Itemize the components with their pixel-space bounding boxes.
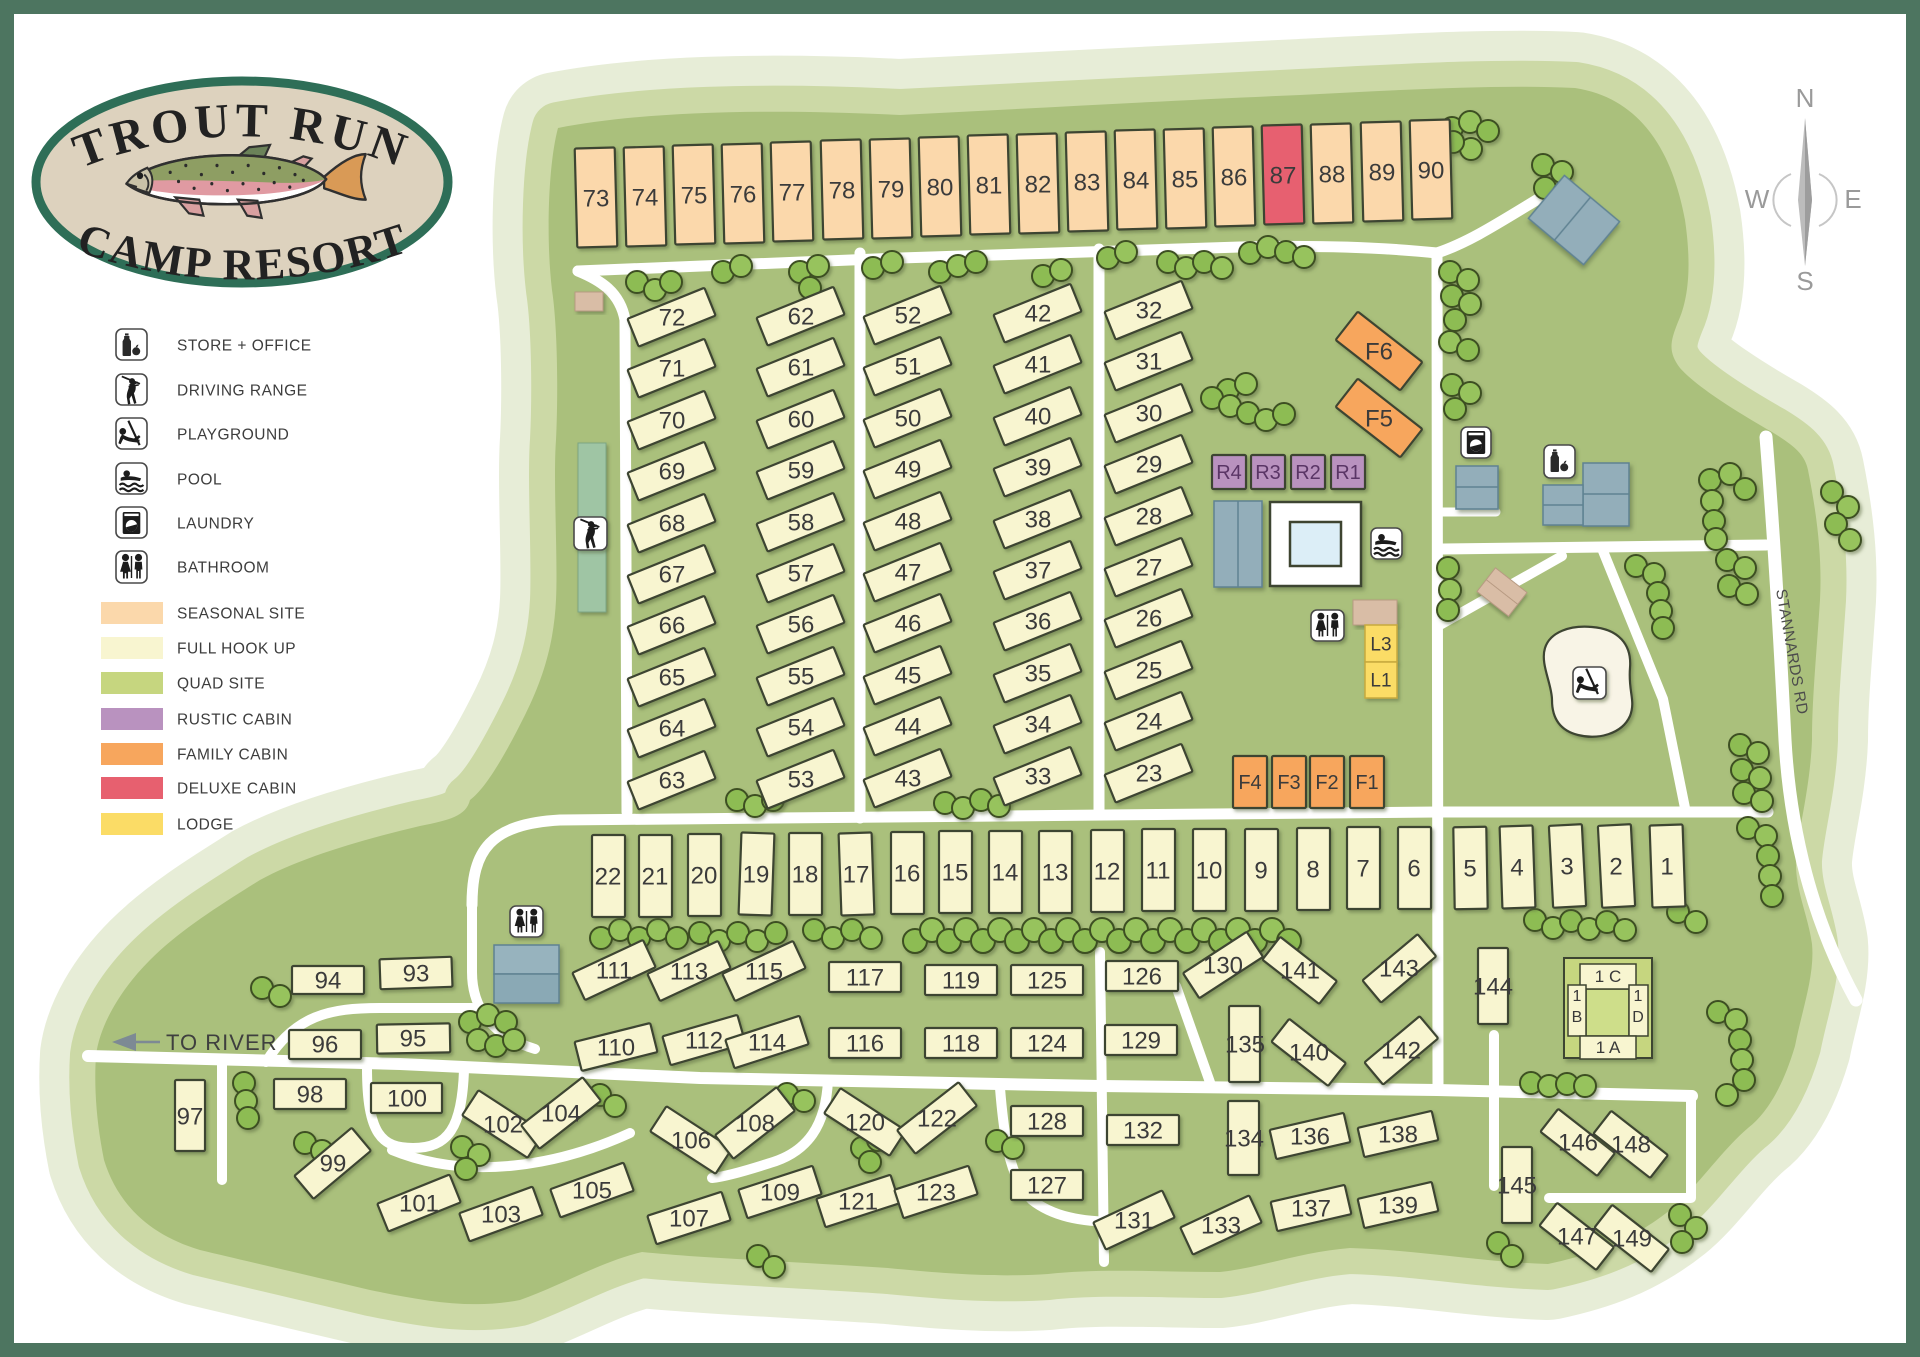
- svg-text:W: W: [1745, 184, 1770, 214]
- svg-text:43: 43: [895, 765, 922, 792]
- svg-text:1: 1: [1573, 988, 1582, 1005]
- svg-text:136: 136: [1290, 1123, 1330, 1150]
- svg-text:37: 37: [1025, 557, 1052, 584]
- svg-text:86: 86: [1221, 164, 1248, 191]
- svg-text:25: 25: [1136, 657, 1163, 684]
- svg-text:56: 56: [788, 611, 815, 638]
- svg-text:123: 123: [916, 1179, 956, 1206]
- svg-text:N: N: [1796, 83, 1815, 113]
- svg-text:F1: F1: [1355, 772, 1378, 794]
- svg-text:132: 132: [1123, 1117, 1163, 1144]
- svg-text:BATHROOM: BATHROOM: [177, 559, 269, 576]
- svg-text:114: 114: [748, 1029, 786, 1056]
- svg-text:77: 77: [779, 179, 806, 206]
- svg-text:74: 74: [632, 184, 659, 211]
- svg-text:109: 109: [760, 1179, 800, 1206]
- svg-text:31: 31: [1136, 348, 1163, 375]
- svg-text:70: 70: [659, 407, 686, 434]
- svg-text:67: 67: [659, 561, 686, 588]
- svg-text:94: 94: [315, 967, 342, 994]
- svg-text:20: 20: [691, 862, 718, 889]
- svg-text:46: 46: [895, 610, 922, 637]
- svg-text:71: 71: [659, 355, 686, 382]
- svg-text:148: 148: [1611, 1131, 1651, 1158]
- svg-text:138: 138: [1378, 1121, 1418, 1148]
- svg-text:129: 129: [1121, 1027, 1161, 1054]
- svg-text:134: 134: [1224, 1125, 1264, 1152]
- svg-text:105: 105: [572, 1177, 612, 1204]
- svg-text:40: 40: [1025, 403, 1052, 430]
- svg-text:FULL HOOK UP: FULL HOOK UP: [177, 640, 296, 657]
- svg-text:80: 80: [927, 174, 954, 201]
- svg-text:78: 78: [829, 177, 856, 204]
- svg-text:107: 107: [669, 1205, 709, 1232]
- svg-text:27: 27: [1136, 554, 1163, 581]
- svg-text:FAMILY CABIN: FAMILY CABIN: [177, 746, 288, 763]
- svg-text:98: 98: [297, 1081, 324, 1108]
- svg-text:B: B: [1572, 1009, 1583, 1026]
- svg-text:R4: R4: [1216, 462, 1242, 484]
- svg-text:S: S: [1796, 266, 1813, 296]
- svg-text:68: 68: [659, 510, 686, 537]
- svg-text:F6: F6: [1365, 338, 1393, 365]
- svg-text:121: 121: [838, 1188, 878, 1215]
- svg-text:65: 65: [659, 664, 686, 691]
- svg-text:10: 10: [1196, 857, 1223, 884]
- svg-text:113: 113: [670, 958, 708, 985]
- svg-text:30: 30: [1136, 400, 1163, 427]
- svg-text:R1: R1: [1335, 462, 1361, 484]
- svg-text:62: 62: [788, 303, 815, 330]
- svg-text:33: 33: [1025, 763, 1052, 790]
- svg-text:145: 145: [1497, 1172, 1537, 1199]
- svg-text:26: 26: [1136, 605, 1163, 632]
- svg-text:111: 111: [596, 957, 632, 984]
- svg-text:97: 97: [177, 1103, 204, 1130]
- svg-text:17: 17: [843, 861, 870, 888]
- svg-text:19: 19: [743, 861, 770, 888]
- svg-text:32: 32: [1136, 297, 1163, 324]
- svg-text:4: 4: [1510, 854, 1523, 881]
- svg-text:144: 144: [1473, 973, 1513, 1000]
- svg-text:E: E: [1844, 184, 1861, 214]
- svg-text:DELUXE CABIN: DELUXE CABIN: [177, 780, 297, 797]
- svg-text:1: 1: [1634, 988, 1643, 1005]
- svg-text:F5: F5: [1365, 405, 1393, 432]
- svg-text:112: 112: [685, 1027, 723, 1054]
- svg-text:8: 8: [1306, 856, 1319, 883]
- svg-text:143: 143: [1379, 955, 1419, 982]
- svg-text:82: 82: [1025, 171, 1052, 198]
- svg-text:120: 120: [845, 1109, 885, 1136]
- svg-text:118: 118: [942, 1030, 980, 1057]
- svg-text:137: 137: [1291, 1195, 1331, 1222]
- svg-text:PLAYGROUND: PLAYGROUND: [177, 426, 289, 443]
- svg-text:35: 35: [1025, 660, 1052, 687]
- svg-text:95: 95: [400, 1025, 427, 1052]
- svg-text:12: 12: [1094, 858, 1121, 885]
- svg-text:83: 83: [1074, 169, 1101, 196]
- svg-text:100: 100: [387, 1085, 427, 1112]
- svg-text:87: 87: [1270, 162, 1297, 189]
- svg-text:119: 119: [942, 967, 980, 994]
- svg-text:72: 72: [659, 304, 686, 331]
- svg-text:45: 45: [895, 662, 922, 689]
- svg-text:F4: F4: [1238, 772, 1261, 794]
- svg-text:50: 50: [895, 405, 922, 432]
- svg-text:2: 2: [1609, 853, 1622, 880]
- svg-text:1: 1: [1660, 853, 1673, 880]
- svg-text:128: 128: [1027, 1108, 1067, 1135]
- svg-text:126: 126: [1122, 963, 1162, 990]
- svg-text:139: 139: [1378, 1192, 1418, 1219]
- svg-text:POOL: POOL: [177, 471, 222, 488]
- svg-text:88: 88: [1319, 161, 1346, 188]
- svg-text:115: 115: [745, 958, 783, 985]
- svg-text:61: 61: [788, 354, 815, 381]
- svg-text:102: 102: [483, 1111, 523, 1138]
- svg-text:LODGE: LODGE: [177, 816, 234, 833]
- svg-text:60: 60: [788, 406, 815, 433]
- svg-text:66: 66: [659, 612, 686, 639]
- svg-text:135: 135: [1225, 1031, 1265, 1058]
- svg-text:127: 127: [1027, 1172, 1067, 1199]
- svg-text:6: 6: [1407, 855, 1420, 882]
- svg-text:5: 5: [1463, 855, 1476, 882]
- svg-text:149: 149: [1612, 1225, 1652, 1252]
- svg-text:108: 108: [735, 1110, 775, 1137]
- svg-text:48: 48: [895, 508, 922, 535]
- svg-text:L3: L3: [1370, 635, 1391, 656]
- svg-text:81: 81: [976, 172, 1003, 199]
- svg-text:63: 63: [659, 767, 686, 794]
- svg-text:59: 59: [788, 457, 815, 484]
- svg-text:TO RIVER: TO RIVER: [166, 1030, 278, 1055]
- svg-text:3: 3: [1560, 853, 1573, 880]
- svg-text:44: 44: [895, 713, 922, 740]
- svg-text:24: 24: [1136, 708, 1163, 735]
- svg-text:28: 28: [1136, 503, 1163, 530]
- svg-text:64: 64: [659, 715, 686, 742]
- svg-text:55: 55: [788, 663, 815, 690]
- svg-text:47: 47: [895, 559, 922, 586]
- svg-text:53: 53: [788, 766, 815, 793]
- svg-text:142: 142: [1381, 1037, 1421, 1064]
- svg-text:54: 54: [788, 714, 815, 741]
- svg-text:38: 38: [1025, 506, 1052, 533]
- svg-text:130: 130: [1203, 952, 1243, 979]
- svg-text:101: 101: [399, 1190, 439, 1217]
- svg-text:21: 21: [642, 863, 669, 890]
- svg-text:F2: F2: [1315, 772, 1338, 794]
- svg-text:34: 34: [1025, 711, 1052, 738]
- svg-text:1 C: 1 C: [1595, 967, 1621, 986]
- svg-text:93: 93: [403, 960, 430, 987]
- svg-text:106: 106: [671, 1127, 711, 1154]
- svg-text:1 A: 1 A: [1596, 1038, 1621, 1057]
- svg-text:11: 11: [1146, 857, 1171, 884]
- svg-text:140: 140: [1289, 1039, 1329, 1066]
- svg-text:RUSTIC CABIN: RUSTIC CABIN: [177, 711, 292, 728]
- svg-text:39: 39: [1025, 454, 1052, 481]
- svg-text:110: 110: [597, 1034, 635, 1061]
- svg-text:22: 22: [595, 863, 622, 890]
- svg-text:18: 18: [792, 861, 819, 888]
- svg-text:84: 84: [1123, 167, 1150, 194]
- svg-text:141: 141: [1280, 957, 1320, 984]
- svg-text:QUAD SITE: QUAD SITE: [177, 675, 265, 692]
- svg-text:131: 131: [1114, 1207, 1154, 1234]
- svg-text:13: 13: [1042, 859, 1069, 886]
- svg-text:15: 15: [942, 859, 969, 886]
- svg-text:124: 124: [1027, 1030, 1067, 1057]
- svg-text:90: 90: [1418, 157, 1445, 184]
- svg-text:73: 73: [583, 185, 610, 212]
- svg-text:SEASONAL SITE: SEASONAL SITE: [177, 605, 305, 622]
- svg-text:DRIVING RANGE: DRIVING RANGE: [177, 382, 308, 399]
- svg-text:23: 23: [1136, 760, 1163, 787]
- svg-text:R2: R2: [1295, 462, 1321, 484]
- svg-text:76: 76: [730, 181, 757, 208]
- svg-text:99: 99: [320, 1150, 347, 1177]
- svg-text:122: 122: [917, 1105, 957, 1132]
- svg-text:16: 16: [894, 860, 921, 887]
- svg-text:D: D: [1632, 1009, 1644, 1026]
- svg-text:147: 147: [1557, 1223, 1597, 1250]
- svg-text:96: 96: [312, 1031, 339, 1058]
- svg-text:57: 57: [788, 560, 815, 587]
- svg-text:7: 7: [1356, 855, 1369, 882]
- svg-text:146: 146: [1558, 1129, 1598, 1156]
- svg-text:F3: F3: [1277, 772, 1300, 794]
- svg-text:116: 116: [846, 1030, 884, 1057]
- svg-text:14: 14: [992, 859, 1019, 886]
- svg-text:85: 85: [1172, 166, 1199, 193]
- svg-text:L1: L1: [1370, 671, 1391, 692]
- svg-text:R3: R3: [1255, 462, 1281, 484]
- svg-text:58: 58: [788, 509, 815, 536]
- svg-text:29: 29: [1136, 451, 1163, 478]
- svg-text:104: 104: [541, 1100, 581, 1127]
- svg-text:52: 52: [895, 302, 922, 329]
- svg-text:69: 69: [659, 458, 686, 485]
- svg-text:49: 49: [895, 456, 922, 483]
- svg-text:42: 42: [1025, 300, 1052, 327]
- svg-text:89: 89: [1369, 159, 1396, 186]
- svg-text:36: 36: [1025, 608, 1052, 635]
- svg-text:125: 125: [1027, 967, 1067, 994]
- svg-text:LAUNDRY: LAUNDRY: [177, 515, 254, 532]
- svg-text:51: 51: [895, 353, 922, 380]
- svg-text:9: 9: [1254, 857, 1267, 884]
- svg-text:75: 75: [681, 182, 708, 209]
- svg-text:79: 79: [878, 176, 905, 203]
- svg-text:STORE + OFFICE: STORE + OFFICE: [177, 337, 312, 354]
- svg-text:103: 103: [481, 1201, 521, 1228]
- svg-text:117: 117: [846, 964, 884, 991]
- svg-text:41: 41: [1025, 351, 1052, 378]
- svg-text:133: 133: [1201, 1212, 1241, 1239]
